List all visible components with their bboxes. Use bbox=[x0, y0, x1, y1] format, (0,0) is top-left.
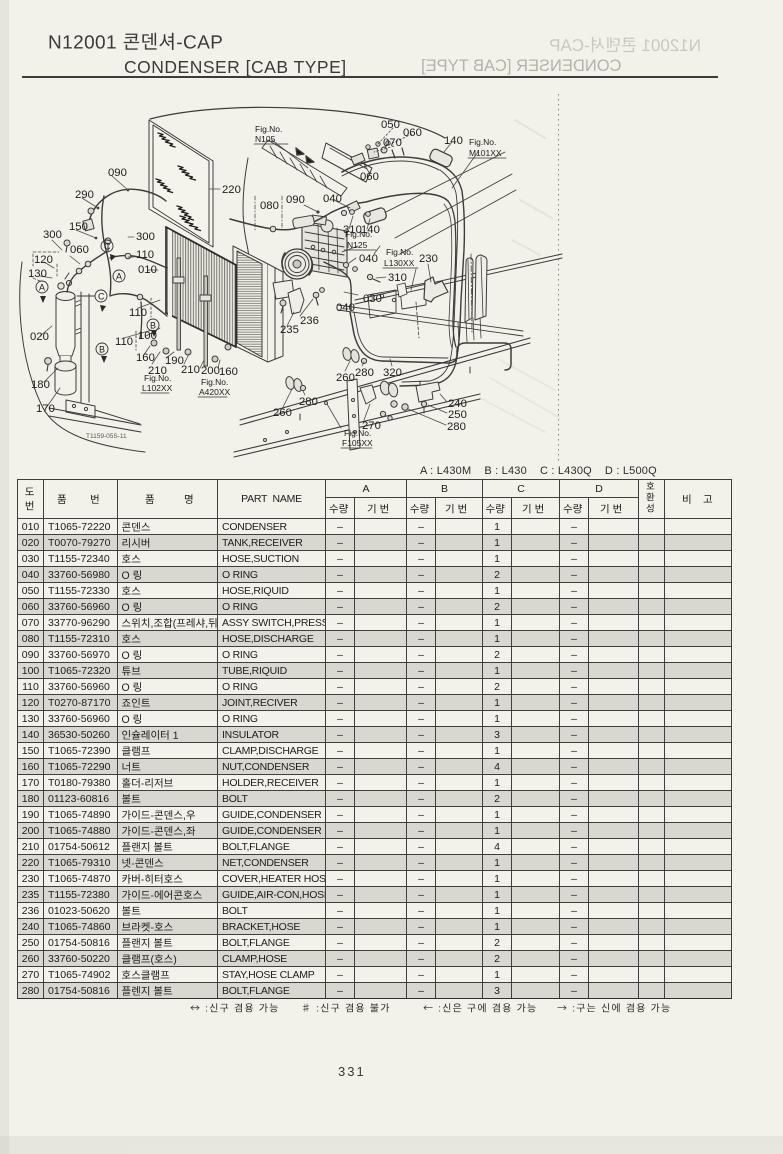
svg-text:230: 230 bbox=[419, 253, 438, 265]
svg-text:280: 280 bbox=[355, 367, 374, 379]
svg-text:M101XX: M101XX bbox=[469, 148, 502, 158]
svg-text:130: 130 bbox=[28, 268, 47, 280]
svg-text:040: 040 bbox=[323, 193, 342, 205]
svg-text:040: 040 bbox=[336, 302, 355, 314]
svg-text:030: 030 bbox=[363, 293, 382, 305]
svg-text:Fig.No.: Fig.No. bbox=[144, 373, 171, 383]
svg-text:Fig.No.: Fig.No. bbox=[344, 428, 371, 438]
svg-text:110: 110 bbox=[136, 249, 154, 261]
svg-text:280: 280 bbox=[299, 396, 318, 408]
svg-text:280: 280 bbox=[447, 421, 466, 433]
svg-text:100: 100 bbox=[138, 330, 157, 342]
svg-text:F105XX: F105XX bbox=[342, 438, 373, 448]
svg-text:170: 170 bbox=[36, 403, 55, 415]
svg-text:010: 010 bbox=[138, 264, 157, 276]
svg-text:T1159-05S-11: T1159-05S-11 bbox=[86, 433, 127, 440]
svg-text:A: A bbox=[116, 272, 122, 282]
svg-text:A: A bbox=[39, 283, 45, 293]
svg-text:200: 200 bbox=[201, 365, 220, 377]
svg-text:L130XX: L130XX bbox=[384, 258, 415, 268]
svg-text:180: 180 bbox=[31, 379, 50, 391]
svg-text:Fig.No.: Fig.No. bbox=[345, 229, 372, 239]
svg-text:300: 300 bbox=[136, 231, 155, 243]
svg-text:L102XX: L102XX bbox=[142, 383, 173, 393]
svg-text:150: 150 bbox=[69, 221, 88, 233]
svg-text:C: C bbox=[104, 242, 111, 252]
svg-text:300: 300 bbox=[43, 229, 62, 241]
svg-text:120: 120 bbox=[34, 254, 53, 266]
svg-text:210: 210 bbox=[181, 364, 200, 376]
svg-text:235: 235 bbox=[280, 324, 299, 336]
svg-text:Fig.No.: Fig.No. bbox=[469, 137, 496, 147]
svg-text:N125: N125 bbox=[347, 240, 368, 250]
svg-text:160: 160 bbox=[136, 352, 155, 364]
svg-text:040: 040 bbox=[359, 253, 378, 265]
svg-text:140: 140 bbox=[444, 135, 463, 147]
svg-text:050: 050 bbox=[381, 119, 400, 131]
svg-text:290: 290 bbox=[75, 189, 94, 201]
svg-text:080: 080 bbox=[260, 200, 279, 212]
svg-text:260: 260 bbox=[336, 372, 355, 384]
svg-text:090: 090 bbox=[108, 167, 127, 179]
svg-text:A420XX: A420XX bbox=[199, 387, 231, 397]
svg-text:Fig.No.: Fig.No. bbox=[386, 247, 413, 257]
svg-text:220: 220 bbox=[222, 184, 241, 196]
svg-text:060: 060 bbox=[403, 127, 422, 139]
svg-text:070: 070 bbox=[383, 137, 402, 149]
svg-text:060: 060 bbox=[360, 171, 379, 183]
svg-text:020: 020 bbox=[30, 331, 49, 343]
svg-text:320: 320 bbox=[383, 367, 402, 379]
svg-text:B: B bbox=[150, 321, 156, 331]
svg-text:Fig.No.: Fig.No. bbox=[255, 124, 282, 134]
svg-text:C: C bbox=[98, 292, 105, 302]
svg-text:310: 310 bbox=[388, 272, 407, 284]
svg-text:Fig.No.: Fig.No. bbox=[201, 377, 228, 387]
svg-text:110: 110 bbox=[115, 336, 133, 348]
svg-text:090: 090 bbox=[286, 194, 305, 206]
svg-text:B: B bbox=[99, 345, 105, 355]
svg-text:060: 060 bbox=[70, 244, 89, 256]
svg-text:250: 250 bbox=[448, 409, 467, 421]
svg-text:260: 260 bbox=[273, 407, 292, 419]
svg-text:236: 236 bbox=[300, 315, 319, 327]
svg-text:N105: N105 bbox=[255, 134, 276, 144]
svg-text:110: 110 bbox=[129, 307, 147, 319]
